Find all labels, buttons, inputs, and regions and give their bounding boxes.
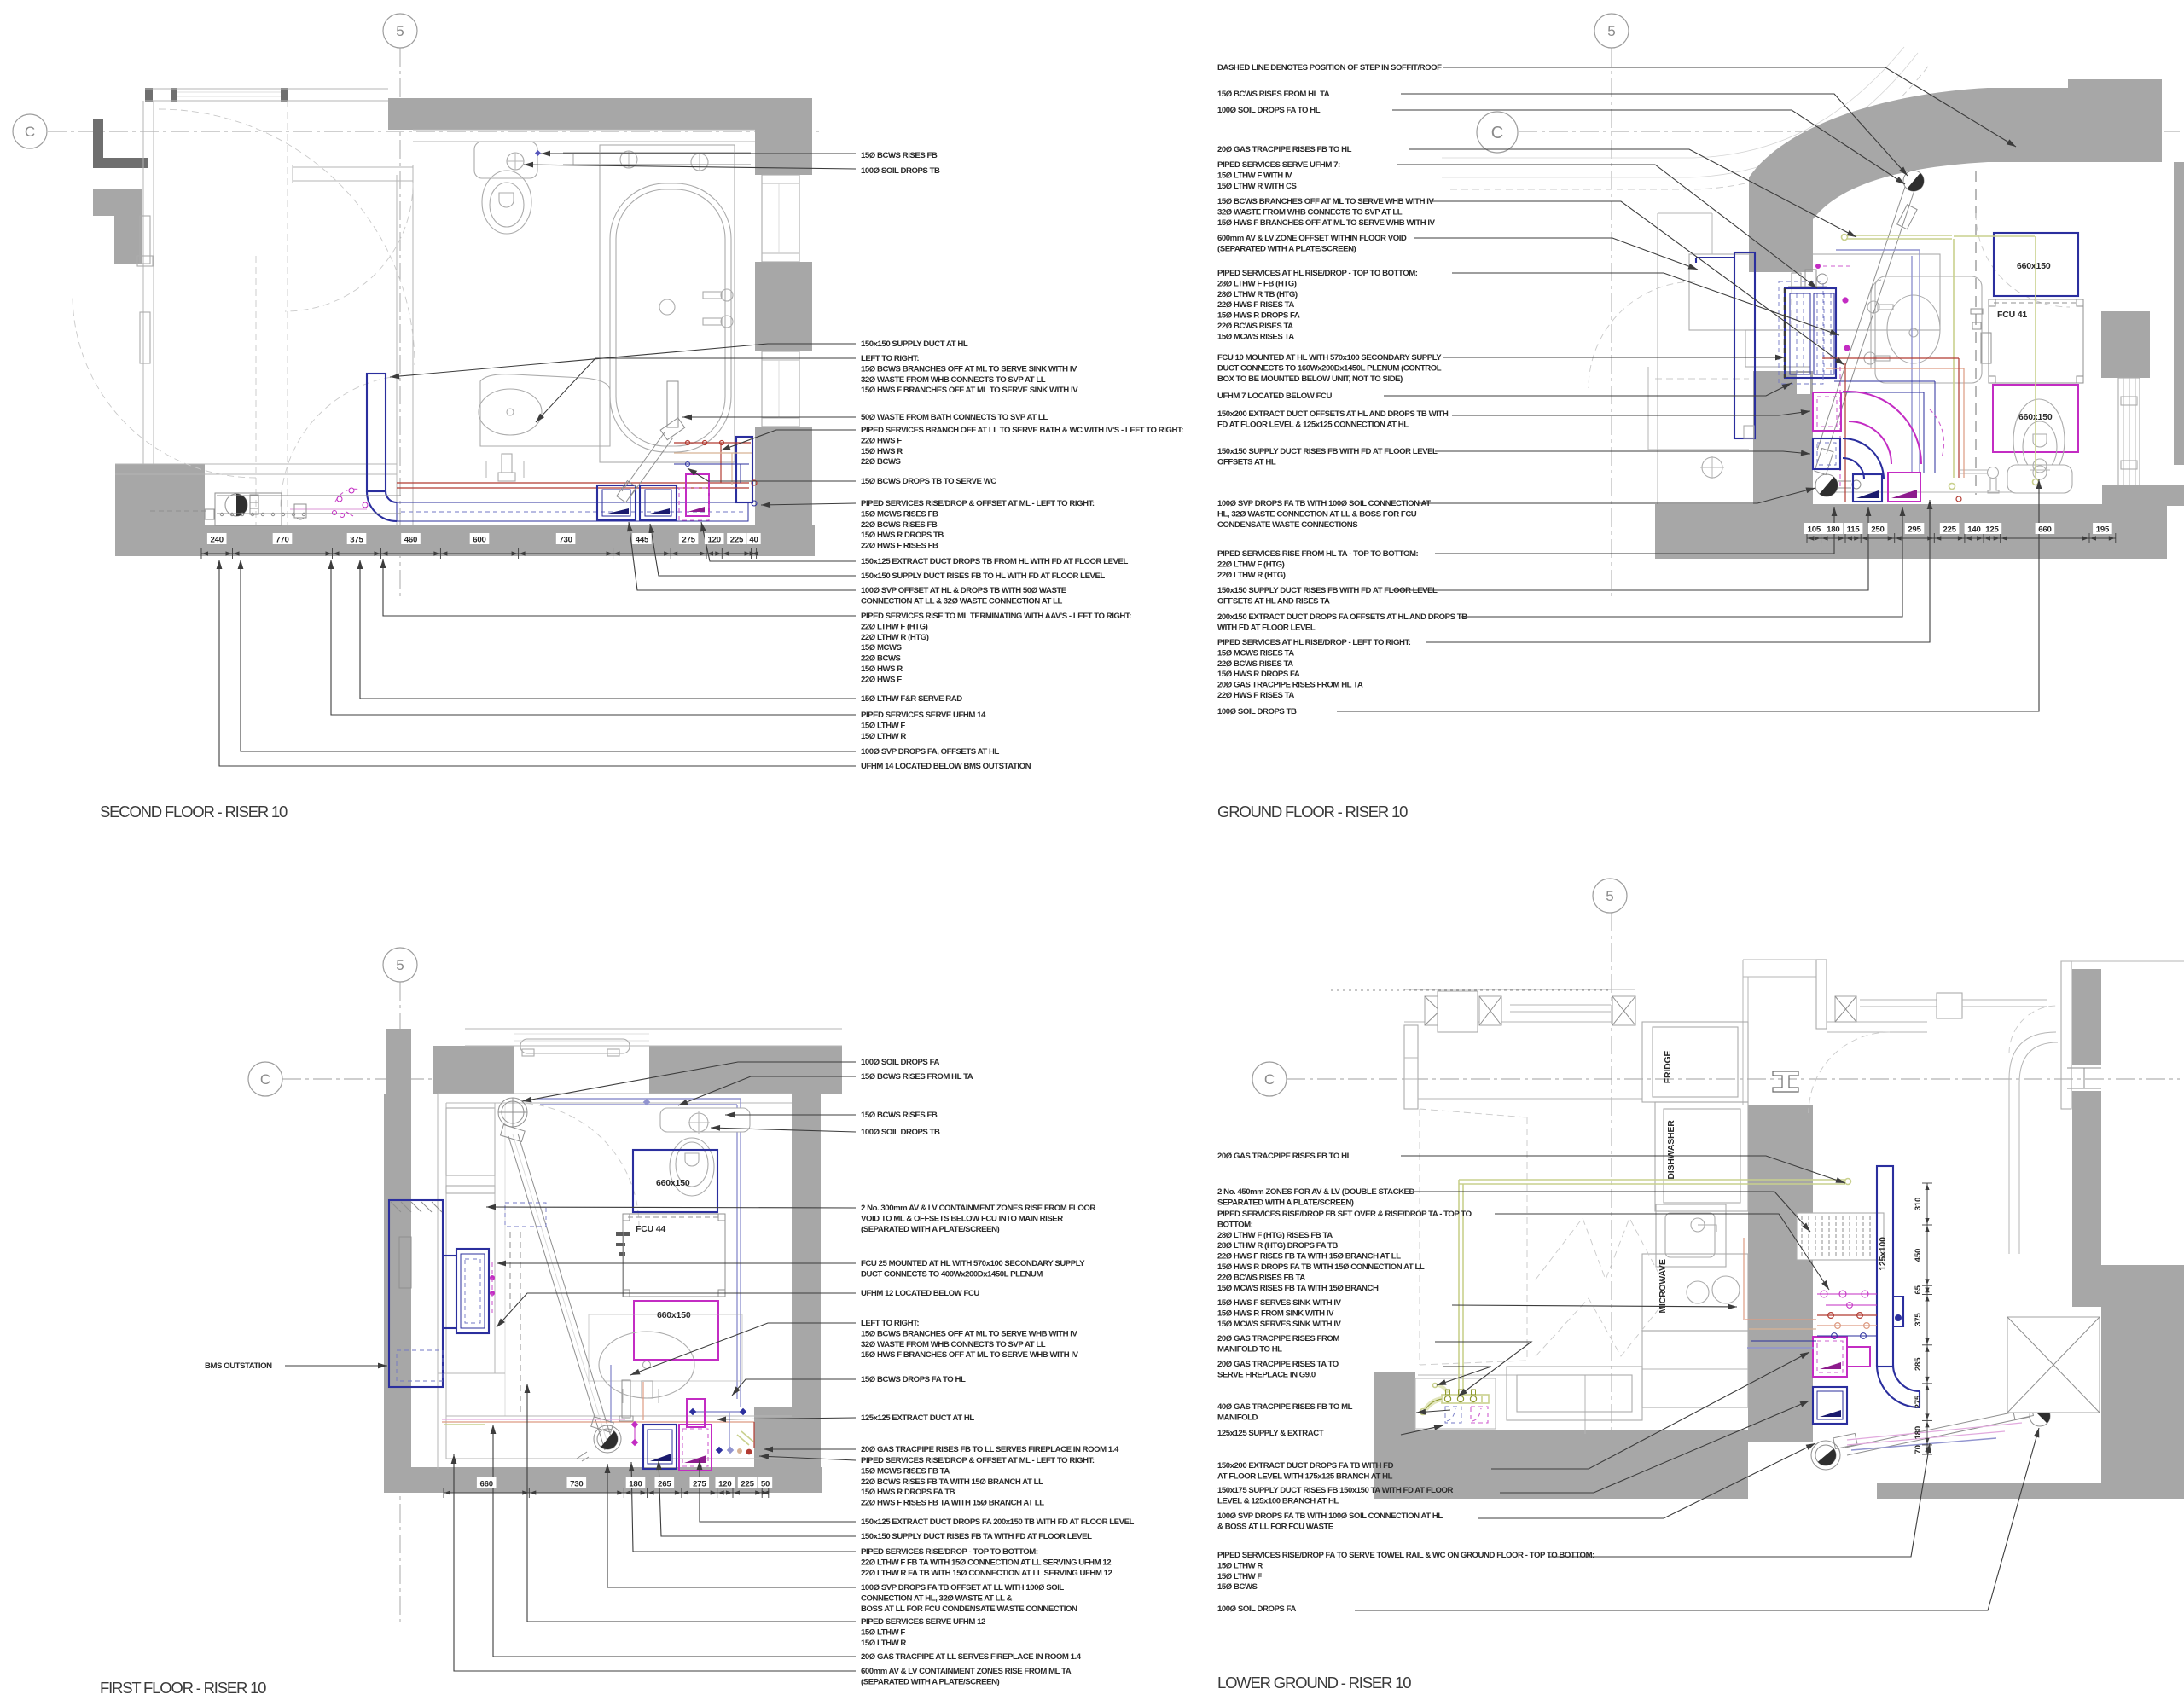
svg-text:150x125 EXTRACT DUCT DROPS FA: 150x125 EXTRACT DUCT DROPS FA 200x150 TB… xyxy=(861,1517,1135,1527)
svg-text:450: 450 xyxy=(1914,1249,1923,1262)
svg-text:275: 275 xyxy=(693,1480,706,1489)
svg-text:265: 265 xyxy=(658,1480,671,1489)
svg-text:15Ø BCWS DROPS FA TO HL: 15Ø BCWS DROPS FA TO HL xyxy=(861,1375,966,1384)
svg-text:UFHM 12 LOCATED BELOW FCU: UFHM 12 LOCATED BELOW FCU xyxy=(861,1289,979,1298)
svg-text:100Ø SOIL DROPS FA: 100Ø SOIL DROPS FA xyxy=(861,1058,939,1067)
svg-text:LOWER GROUND - RISER 10: LOWER GROUND - RISER 10 xyxy=(1217,1674,1411,1691)
svg-text:DASHED LINE DENOTES POSITION O: DASHED LINE DENOTES POSITION OF STEP IN … xyxy=(1217,63,1442,73)
svg-text:C: C xyxy=(25,124,35,140)
svg-text:SECOND FLOOR - RISER 10: SECOND FLOOR - RISER 10 xyxy=(100,803,288,821)
svg-text:15Ø BCWS RISES FB: 15Ø BCWS RISES FB xyxy=(861,151,938,160)
svg-text:20Ø GAS TRACPIPE RISES FB TO L: 20Ø GAS TRACPIPE RISES FB TO LL SERVES F… xyxy=(861,1445,1119,1454)
svg-text:UFHM 7 LOCATED BELOW FCU: UFHM 7 LOCATED BELOW FCU xyxy=(1217,392,1333,401)
svg-text:5: 5 xyxy=(396,957,404,973)
svg-text:180: 180 xyxy=(1827,525,1839,535)
svg-text:115: 115 xyxy=(1847,525,1861,535)
svg-text:375: 375 xyxy=(350,536,363,545)
svg-text:100Ø SOIL DROPS TB: 100Ø SOIL DROPS TB xyxy=(861,1128,940,1137)
svg-text:FRIDGE: FRIDGE xyxy=(1663,1051,1673,1084)
svg-text:GROUND FLOOR - RISER 10: GROUND FLOOR - RISER 10 xyxy=(1217,803,1408,821)
svg-text:125x125 SUPPLY & EXTRACT: 125x125 SUPPLY & EXTRACT xyxy=(1217,1429,1324,1438)
svg-text:UFHM 14 LOCATED BELOW BMS OUTS: UFHM 14 LOCATED BELOW BMS OUTSTATION xyxy=(861,762,1031,771)
svg-text:460: 460 xyxy=(404,536,417,545)
svg-text:15Ø BCWS RISES FROM HL TA: 15Ø BCWS RISES FROM HL TA xyxy=(861,1072,973,1082)
svg-text:150x150 SUPPLY DUCT RISES FB T: 150x150 SUPPLY DUCT RISES FB TA WITH FD … xyxy=(861,1532,1092,1541)
svg-text:120: 120 xyxy=(707,536,720,545)
svg-text:295: 295 xyxy=(1908,525,1921,535)
svg-text:150x150 SUPPLY DUCT RISES FB T: 150x150 SUPPLY DUCT RISES FB TO HL WITH … xyxy=(861,572,1105,581)
svg-text:DISHWASHER: DISHWASHER xyxy=(1666,1120,1676,1180)
svg-text:5: 5 xyxy=(1606,888,1613,904)
svg-text:660: 660 xyxy=(2038,525,2051,535)
svg-text:40: 40 xyxy=(749,536,758,545)
svg-text:125: 125 xyxy=(1985,525,1999,535)
svg-text:MICROWAVE: MICROWAVE xyxy=(1658,1259,1668,1314)
svg-text:105: 105 xyxy=(1808,525,1821,535)
svg-text:275: 275 xyxy=(1914,1395,1923,1408)
svg-text:15Ø HWS F SERVES SINK WITH IV1: 15Ø HWS F SERVES SINK WITH IV15Ø HWS R F… xyxy=(1217,1298,1342,1329)
svg-text:C: C xyxy=(1264,1071,1275,1088)
svg-text:275: 275 xyxy=(682,536,695,545)
svg-text:C: C xyxy=(260,1071,270,1088)
svg-text:375: 375 xyxy=(1914,1313,1923,1326)
svg-text:C: C xyxy=(1491,124,1503,142)
svg-text:15Ø BCWS RISES FB: 15Ø BCWS RISES FB xyxy=(861,1111,938,1120)
svg-text:445: 445 xyxy=(636,536,649,545)
svg-text:100Ø SOIL DROPS TB: 100Ø SOIL DROPS TB xyxy=(1217,707,1297,717)
svg-text:770: 770 xyxy=(276,536,288,545)
svg-text:180: 180 xyxy=(1914,1426,1923,1439)
svg-text:100Ø SOIL DROPS TB: 100Ø SOIL DROPS TB xyxy=(861,166,940,176)
svg-text:120: 120 xyxy=(718,1480,731,1489)
svg-text:250: 250 xyxy=(1871,525,1884,535)
svg-text:BMS OUTSTATION: BMS OUTSTATION xyxy=(205,1361,272,1371)
svg-text:660x150: 660x150 xyxy=(656,1178,690,1188)
svg-text:125x125 EXTRACT DUCT AT HL: 125x125 EXTRACT DUCT AT HL xyxy=(861,1413,974,1423)
svg-text:150x200 EXTRACT DUCT DROPS FA: 150x200 EXTRACT DUCT DROPS FA TB WITH FD… xyxy=(1217,1461,1394,1481)
svg-text:660x150: 660x150 xyxy=(657,1310,691,1320)
svg-text:20Ø GAS TRACPIPE RISES FB TO H: 20Ø GAS TRACPIPE RISES FB TO HL xyxy=(1217,1152,1352,1161)
svg-text:100Ø SVP OFFSET AT HL & DROPS: 100Ø SVP OFFSET AT HL & DROPS TB WITH 50… xyxy=(861,586,1067,606)
svg-text:15Ø BCWS DROPS TB TO SERVE WC: 15Ø BCWS DROPS TB TO SERVE WC xyxy=(861,477,996,486)
svg-text:180: 180 xyxy=(629,1480,642,1489)
svg-text:15Ø BCWS RISES FROM HL TA: 15Ø BCWS RISES FROM HL TA xyxy=(1217,90,1330,99)
svg-text:225: 225 xyxy=(730,536,744,545)
svg-text:730: 730 xyxy=(559,536,572,545)
svg-text:125x100: 125x100 xyxy=(1878,1237,1888,1271)
svg-text:5: 5 xyxy=(396,23,404,39)
svg-text:240: 240 xyxy=(210,536,223,545)
svg-text:100Ø SVP DROPS FA, OFFSETS AT: 100Ø SVP DROPS FA, OFFSETS AT HL xyxy=(861,747,999,757)
svg-text:225: 225 xyxy=(1943,525,1956,535)
svg-text:600: 600 xyxy=(473,536,485,545)
svg-text:20Ø GAS TRACPIPE AT LL SERVES: 20Ø GAS TRACPIPE AT LL SERVES FIREPLACE … xyxy=(861,1652,1082,1662)
svg-text:285: 285 xyxy=(1914,1357,1923,1371)
svg-text:660: 660 xyxy=(479,1480,492,1489)
svg-text:FCU 41: FCU 41 xyxy=(1997,310,2027,320)
svg-text:195: 195 xyxy=(2096,525,2110,535)
svg-text:70: 70 xyxy=(1914,1445,1923,1454)
svg-text:730: 730 xyxy=(570,1480,583,1489)
svg-text:150x150 SUPPLY DUCT AT HL: 150x150 SUPPLY DUCT AT HL xyxy=(861,339,968,349)
svg-text:20Ø GAS TRACPIPE RISES FB TO H: 20Ø GAS TRACPIPE RISES FB TO HL xyxy=(1217,145,1352,154)
svg-text:FCU 44: FCU 44 xyxy=(636,1224,665,1234)
svg-text:50Ø WASTE FROM BATH CONNECTS T: 50Ø WASTE FROM BATH CONNECTS TO SVP AT L… xyxy=(861,413,1048,422)
svg-text:140: 140 xyxy=(1967,525,1980,535)
svg-text:15Ø LTHW F&R SERVE RAD: 15Ø LTHW F&R SERVE RAD xyxy=(861,694,962,704)
svg-text:660x150: 660x150 xyxy=(2017,261,2051,271)
svg-text:FIRST FLOOR - RISER 10: FIRST FLOOR - RISER 10 xyxy=(100,1679,266,1697)
svg-text:100Ø SOIL DROPS FA TO HL: 100Ø SOIL DROPS FA TO HL xyxy=(1217,106,1321,115)
svg-text:5: 5 xyxy=(1607,23,1615,39)
svg-text:150x125 EXTRACT DUCT DROPS TB: 150x125 EXTRACT DUCT DROPS TB FROM HL WI… xyxy=(861,557,1128,566)
svg-text:65: 65 xyxy=(1914,1285,1923,1294)
svg-text:50: 50 xyxy=(761,1480,770,1489)
svg-text:225: 225 xyxy=(741,1480,754,1489)
svg-text:100Ø SOIL DROPS FA: 100Ø SOIL DROPS FA xyxy=(1217,1604,1296,1614)
svg-text:310: 310 xyxy=(1914,1198,1923,1210)
